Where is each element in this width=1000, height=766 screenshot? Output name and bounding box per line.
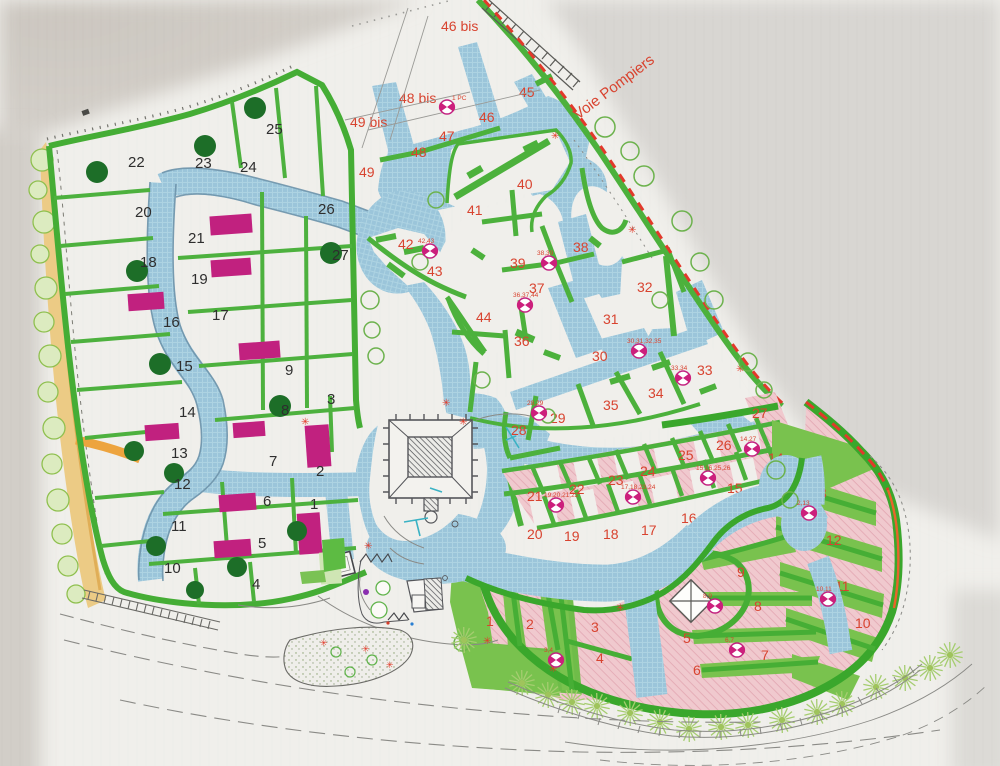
svg-text:✳: ✳ xyxy=(628,225,636,236)
svg-text:17: 17 xyxy=(641,522,657,538)
svg-text:22: 22 xyxy=(128,154,145,171)
svg-text:2: 2 xyxy=(526,616,534,632)
svg-text:7: 7 xyxy=(269,453,277,470)
svg-text:7: 7 xyxy=(761,647,769,663)
svg-text:20: 20 xyxy=(527,526,543,542)
svg-text:8,9: 8,9 xyxy=(703,593,712,600)
svg-text:47: 47 xyxy=(439,128,455,144)
svg-text:27: 27 xyxy=(752,405,768,421)
svg-text:18: 18 xyxy=(140,254,157,271)
svg-text:38: 38 xyxy=(573,239,589,255)
svg-text:19,20,21,22: 19,20,21,22 xyxy=(544,492,579,499)
svg-text:43: 43 xyxy=(427,263,443,279)
svg-text:11: 11 xyxy=(171,518,187,535)
svg-text:28: 28 xyxy=(511,422,527,438)
svg-text:36,37,44: 36,37,44 xyxy=(513,292,539,299)
svg-text:1: 1 xyxy=(486,613,494,629)
svg-text:42,43: 42,43 xyxy=(418,238,435,245)
svg-text:6: 6 xyxy=(263,493,271,510)
svg-text:2,13: 2,13 xyxy=(797,500,810,507)
svg-text:17: 17 xyxy=(212,307,229,324)
svg-text:2: 2 xyxy=(316,463,324,480)
svg-text:19: 19 xyxy=(564,528,580,544)
svg-text:26: 26 xyxy=(318,201,335,218)
svg-text:8: 8 xyxy=(281,402,289,419)
svg-text:✳: ✳ xyxy=(320,638,328,648)
svg-text:10: 10 xyxy=(855,615,871,631)
svg-text:24: 24 xyxy=(240,159,257,176)
svg-text:30,31,32,35: 30,31,32,35 xyxy=(627,338,662,345)
svg-text:25: 25 xyxy=(678,447,694,463)
svg-text:34: 34 xyxy=(648,385,664,401)
svg-text:5: 5 xyxy=(683,630,691,646)
svg-text:33: 33 xyxy=(697,362,713,378)
svg-text:48: 48 xyxy=(411,144,427,160)
svg-text:15,16,25,26: 15,16,25,26 xyxy=(696,465,731,472)
svg-text:10: 10 xyxy=(164,560,181,577)
svg-text:35: 35 xyxy=(603,397,619,413)
svg-text:9: 9 xyxy=(285,362,293,379)
svg-text:17,18,23,24: 17,18,23,24 xyxy=(621,484,656,491)
svg-text:32: 32 xyxy=(637,279,653,295)
svg-text:29: 29 xyxy=(550,410,566,426)
svg-text:✳: ✳ xyxy=(442,398,450,409)
svg-text:18: 18 xyxy=(603,526,619,542)
svg-text:21: 21 xyxy=(188,230,205,247)
svg-text:✳: ✳ xyxy=(364,541,372,552)
svg-text:49: 49 xyxy=(359,164,375,180)
svg-text:4: 4 xyxy=(596,650,604,666)
svg-text:12: 12 xyxy=(826,532,842,548)
svg-text:✳: ✳ xyxy=(459,417,467,428)
svg-text:30: 30 xyxy=(592,348,608,364)
svg-text:33,34: 33,34 xyxy=(671,365,688,372)
svg-text:40: 40 xyxy=(517,176,533,192)
svg-text:✳: ✳ xyxy=(616,603,624,614)
svg-text:3: 3 xyxy=(591,619,599,635)
svg-text:25: 25 xyxy=(266,121,283,138)
svg-text:14: 14 xyxy=(179,404,196,421)
svg-text:39: 39 xyxy=(510,255,526,271)
svg-text:20: 20 xyxy=(135,204,152,221)
svg-text:6,7: 6,7 xyxy=(725,637,734,644)
svg-text:10,11: 10,11 xyxy=(816,586,832,593)
svg-text:16: 16 xyxy=(163,314,180,331)
svg-text:21: 21 xyxy=(527,488,543,504)
svg-text:3,4: 3,4 xyxy=(544,647,553,654)
svg-text:31: 31 xyxy=(603,311,619,327)
svg-text:24: 24 xyxy=(640,463,656,479)
svg-text:13: 13 xyxy=(171,445,188,462)
svg-text:✳: ✳ xyxy=(386,660,394,670)
svg-text:28,29: 28,29 xyxy=(527,400,544,407)
svg-text:3: 3 xyxy=(327,391,335,408)
svg-text:5: 5 xyxy=(258,535,266,552)
svg-text:46 bis: 46 bis xyxy=(441,18,478,34)
svg-text:1 PC: 1 PC xyxy=(452,95,467,102)
svg-text:15: 15 xyxy=(176,358,193,375)
svg-text:26: 26 xyxy=(716,437,732,453)
svg-text:42: 42 xyxy=(398,236,414,252)
svg-text:8: 8 xyxy=(754,598,762,614)
svg-text:36: 36 xyxy=(514,333,530,349)
svg-text:19: 19 xyxy=(191,271,208,288)
svg-text:44: 44 xyxy=(476,309,492,325)
svg-text:46: 46 xyxy=(479,109,495,125)
svg-text:14,27: 14,27 xyxy=(740,436,757,443)
svg-text:✳: ✳ xyxy=(301,417,309,428)
svg-text:9: 9 xyxy=(737,564,745,580)
svg-text:✳: ✳ xyxy=(551,131,559,142)
svg-text:✳: ✳ xyxy=(362,644,370,654)
svg-text:41: 41 xyxy=(467,202,483,218)
svg-text:1: 1 xyxy=(310,496,318,513)
svg-text:27: 27 xyxy=(332,247,349,264)
svg-text:23: 23 xyxy=(195,155,212,172)
svg-text:6: 6 xyxy=(693,662,701,678)
svg-text:4: 4 xyxy=(252,576,260,593)
svg-text:12: 12 xyxy=(174,476,191,493)
svg-text:38,39: 38,39 xyxy=(537,250,554,257)
svg-text:✳: ✳ xyxy=(483,636,491,647)
